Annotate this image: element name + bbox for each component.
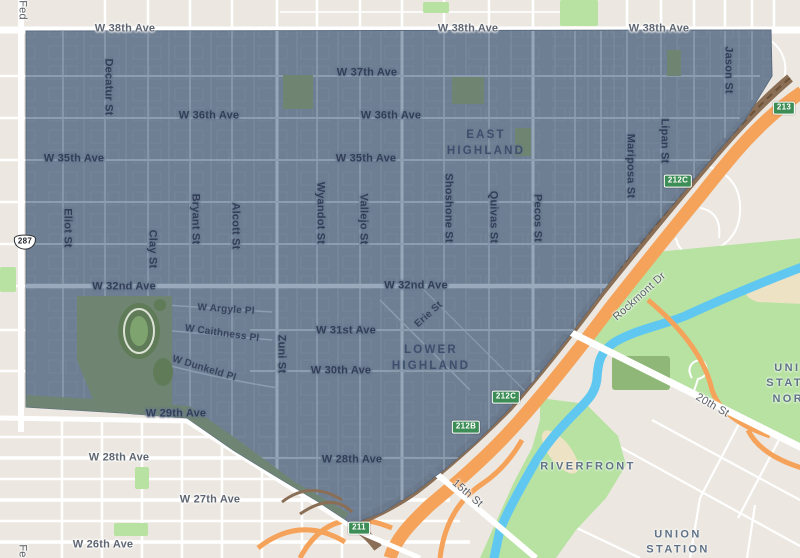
map-art xyxy=(0,0,800,558)
map-canvas[interactable]: W 38th AveW 38th AveW 38th AveW 37th Ave… xyxy=(0,0,800,558)
